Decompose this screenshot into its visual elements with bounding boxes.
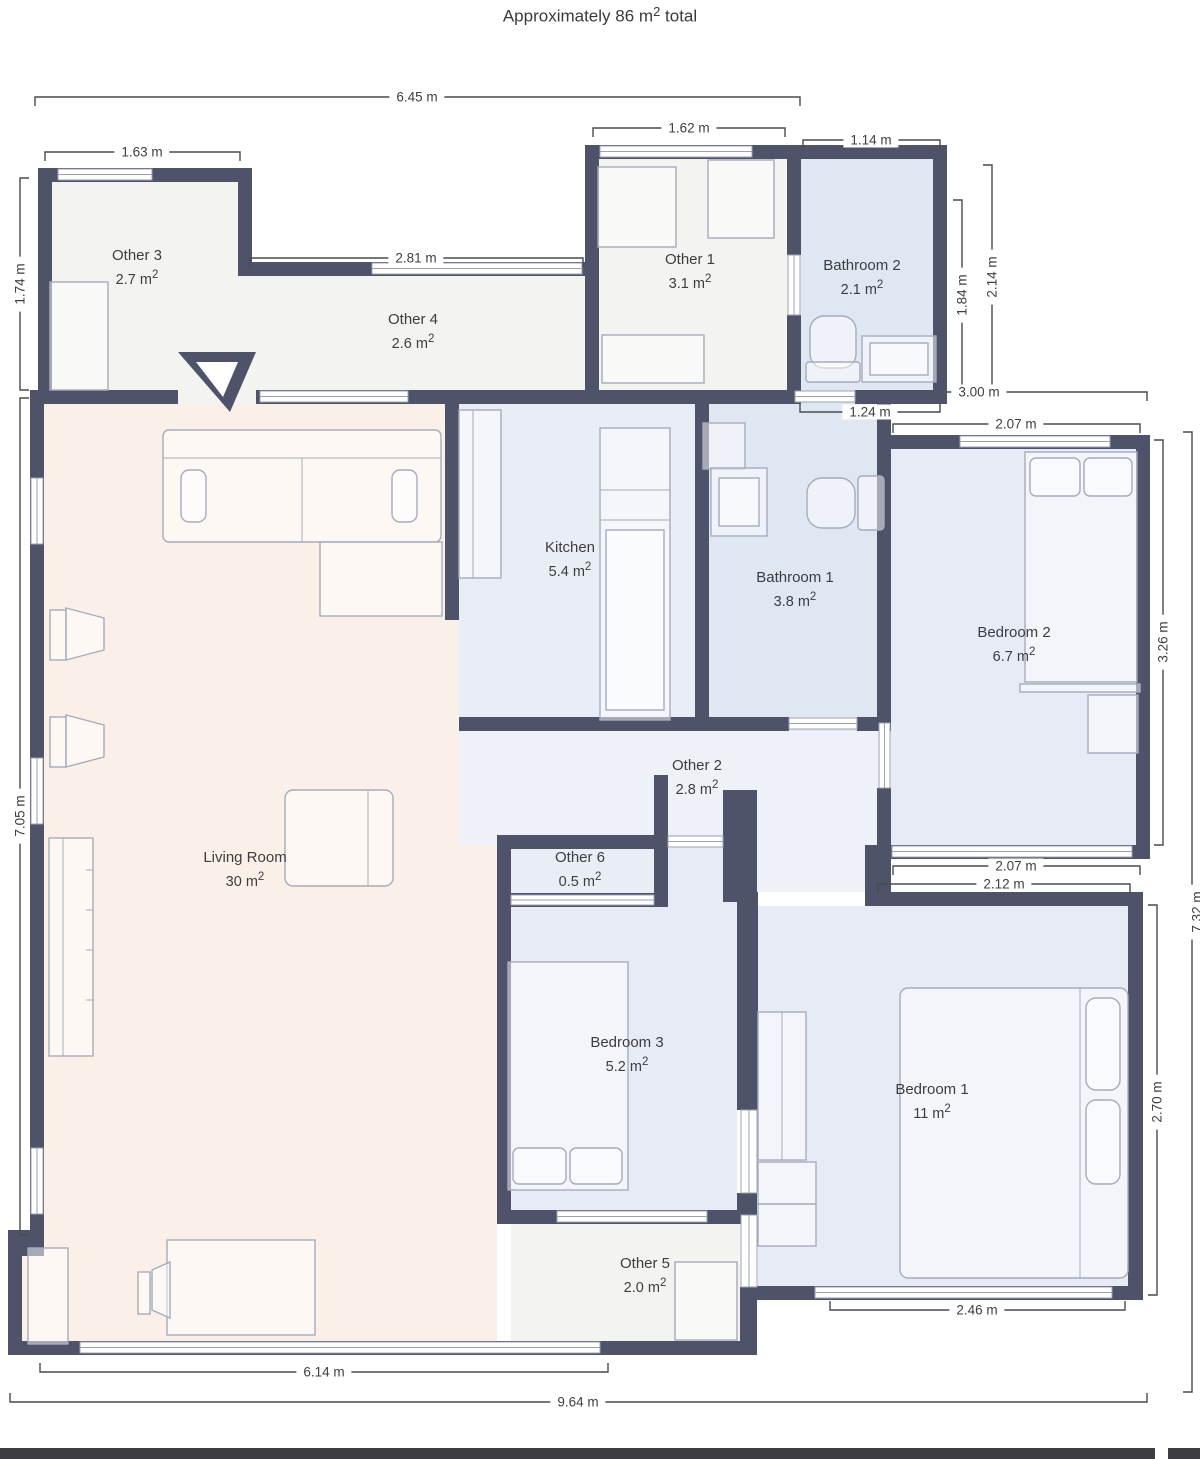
room-label-bedroom3: Bedroom 3 5.2 m2 [590, 1031, 663, 1079]
kitchen-counter [459, 410, 501, 578]
window-living-left-3 [31, 1148, 43, 1214]
door-bedroom3 [668, 836, 723, 847]
floor-plan-drawing [0, 0, 1200, 1459]
dim-label-other3-width: 1.63 m [114, 145, 169, 160]
window-bedroom2-top [960, 436, 1110, 447]
dim-label-bathroom2-outer-height: 2.14 m [985, 249, 1000, 304]
room-label-other1: Other 1 3.1 m2 [665, 248, 715, 296]
bed-bedroom1 [900, 988, 1128, 1278]
sink-icon-bathroom2 [862, 336, 936, 382]
toilet-icon-bathroom2 [806, 316, 860, 382]
floor-kitchen-opening [445, 620, 459, 717]
window-other1-top [600, 146, 752, 157]
dim-label-right-total-height: 7.32 m [1190, 884, 1200, 939]
toilet-icon-bathroom1 [807, 476, 884, 530]
dim-label-bedroom1-top-width: 2.12 m [976, 877, 1031, 892]
dim-label-right-upper-width: 3.00 m [951, 385, 1006, 400]
cabinet-other3 [50, 282, 108, 390]
room-label-bathroom1: Bathroom 1 3.8 m2 [756, 566, 834, 614]
cabinet-bathroom1 [703, 423, 745, 469]
room-label-bedroom1: Bedroom 1 11 m2 [895, 1078, 968, 1126]
armchair-living [285, 790, 393, 886]
bookcase-living [49, 838, 93, 1056]
chaise [320, 542, 442, 616]
glazed-door-bedroom1-upper [741, 1110, 757, 1193]
dim-label-bathroom2-bottom-width: 1.24 m [842, 405, 897, 420]
bottom-bar [0, 1448, 1200, 1459]
dim-label-bathroom2-inner-height: 1.84 m [955, 267, 970, 322]
dim-label-bottom-total-width: 9.64 m [550, 1395, 605, 1410]
door-bedroom2 [879, 723, 890, 788]
dim-label-left-height: 7.05 m [13, 788, 28, 843]
dim-label-bedroom2-top-width: 2.07 m [988, 417, 1043, 432]
dim-label-other4-width: 2.81 m [388, 251, 443, 266]
cabinet-living-bottom [28, 1248, 68, 1344]
window-bedroom2-bottom [892, 846, 1132, 857]
window-other3-top [58, 169, 152, 180]
plan-title: Approximately 86 m2 total [503, 3, 697, 27]
door-other6 [511, 895, 654, 905]
dim-label-bathroom2-width: 1.14 m [843, 133, 898, 148]
dim-label-bedroom2-bottom-width: 2.07 m [988, 859, 1043, 874]
lounge-chair-1 [50, 608, 104, 660]
window-bedroom1-bottom [815, 1287, 1112, 1298]
room-label-other4: Other 4 2.6 m2 [388, 308, 438, 356]
room-label-other2: Other 2 2.8 m2 [672, 754, 722, 802]
kitchen-tall-unit [600, 428, 670, 720]
window-living-left-1 [31, 478, 43, 544]
dim-label-other3-height: 1.74 m [13, 256, 28, 311]
appliance-other1-a [598, 167, 676, 247]
room-label-other3: Other 3 2.7 m2 [112, 244, 162, 292]
dim-label-bedroom2-height: 3.26 m [1156, 614, 1171, 669]
nightstand-bedroom2 [1088, 695, 1138, 753]
window-living-left-2 [31, 758, 43, 824]
window-entry-wall [260, 391, 408, 402]
dim-label-bedroom1-bottom-width: 2.46 m [949, 1303, 1004, 1318]
dim-label-bottom-inner-width: 6.14 m [296, 1365, 351, 1380]
counter-other1 [602, 335, 704, 383]
door-bathroom1-bottom [789, 718, 857, 729]
appliance-other1-b [708, 160, 774, 238]
room-label-living-room: Living Room 30 m2 [203, 846, 286, 894]
floor-vestibule [757, 845, 865, 892]
cabinet-other5 [675, 1262, 737, 1340]
window-living-bottom [80, 1342, 600, 1353]
window-bedroom3-bottom [557, 1211, 707, 1222]
room-label-bathroom2: Bathroom 2 2.1 m2 [823, 254, 901, 302]
room-label-other6: Other 6 0.5 m2 [555, 846, 605, 894]
room-label-other5: Other 5 2.0 m2 [620, 1252, 670, 1300]
dim-label-top-width: 6.45 m [389, 90, 444, 105]
room-label-kitchen: Kitchen 5.4 m2 [545, 536, 595, 584]
room-label-bedroom2: Bedroom 2 6.7 m2 [977, 621, 1050, 669]
lounge-chair-2 [50, 715, 104, 767]
sink-icon-bathroom1 [711, 468, 767, 536]
dim-label-bedroom1-height: 2.70 m [1150, 1074, 1165, 1129]
floor-plan: Approximately 86 m2 total Other 3 2.7 m2… [0, 0, 1200, 1459]
door-bathroom1-top [795, 391, 855, 402]
glazed-door-bedroom1-lower [741, 1215, 757, 1287]
door-other1-bathroom2 [788, 255, 800, 315]
dim-label-other1-width: 1.62 m [661, 121, 716, 136]
